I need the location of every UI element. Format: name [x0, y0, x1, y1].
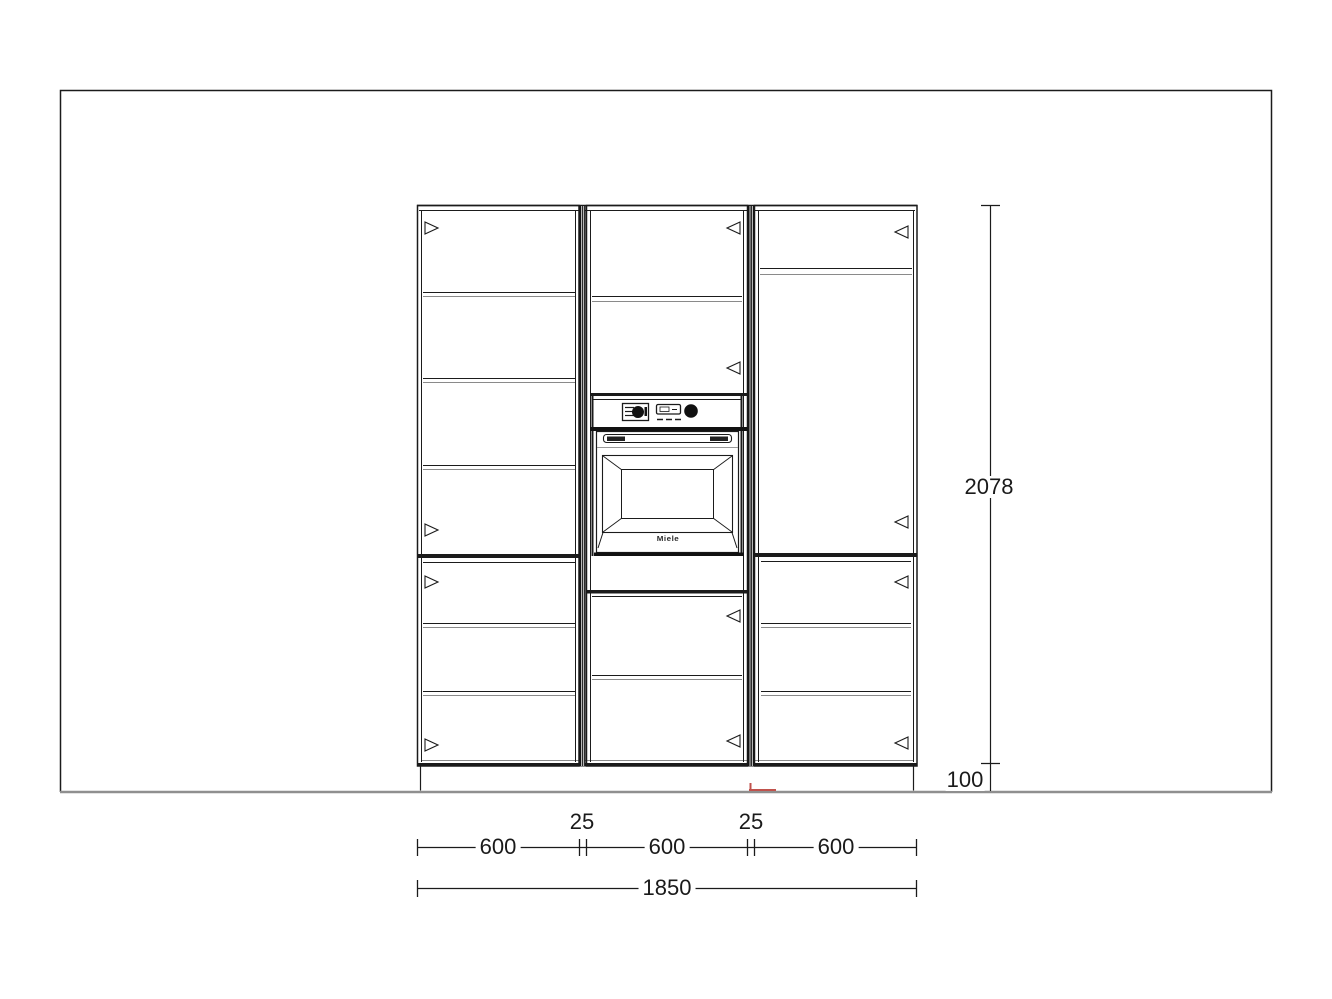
door-hinge-arrow-icon: [895, 516, 908, 528]
plinth: [421, 766, 914, 791]
door-hinge-arrow-icon: [727, 610, 740, 622]
door-hinge-arrow-icon: [895, 226, 908, 238]
dim-width-gap-1: 25: [569, 811, 595, 833]
wall-outline: [61, 91, 1272, 793]
dim-width-gap-2: 25: [738, 811, 764, 833]
oven-knob-icon: [684, 404, 698, 418]
door-hinge-arrow-icon: [727, 362, 740, 374]
oven-handle: [604, 435, 732, 443]
tall-cabinet-left[interactable]: [417, 206, 579, 767]
drawing-canvas: 600 25 600 25 600 1850 2078 100 Miele: [0, 0, 1332, 999]
dim-height-plinth: 100: [946, 769, 985, 791]
door-hinge-arrow-icon: [895, 576, 908, 588]
built-in-oven[interactable]: [590, 393, 748, 556]
dim-width-segment-3: 600: [814, 836, 859, 858]
red-position-marker[interactable]: [749, 783, 776, 790]
door-hinge-arrow-icon: [895, 737, 908, 749]
dim-width-segment-1: 600: [476, 836, 521, 858]
tall-cabinet-middle[interactable]: [586, 206, 748, 767]
cabinet-spacer-right: [748, 206, 755, 766]
dim-width-segment-2: 600: [645, 836, 690, 858]
door-hinge-arrow-icon: [727, 222, 740, 234]
oven-program-display-icon: [623, 404, 649, 421]
oven-clock-display-icon: [657, 405, 682, 420]
door-hinge-arrow-icon: [425, 222, 438, 234]
dim-height-overall: 2078: [961, 476, 1018, 498]
door-hinge-arrow-icon: [727, 735, 740, 747]
dim-width-total: 1850: [639, 877, 696, 899]
door-hinge-arrow-icon: [425, 739, 438, 751]
door-hinge-arrow-icon: [425, 576, 438, 588]
tall-cabinet-right[interactable]: [755, 206, 918, 767]
oven-control-panel: [623, 404, 698, 421]
door-hinge-arrow-icon: [425, 524, 438, 536]
cabinet-spacer-left: [580, 206, 586, 766]
oven-brand-text: Miele: [657, 535, 680, 542]
